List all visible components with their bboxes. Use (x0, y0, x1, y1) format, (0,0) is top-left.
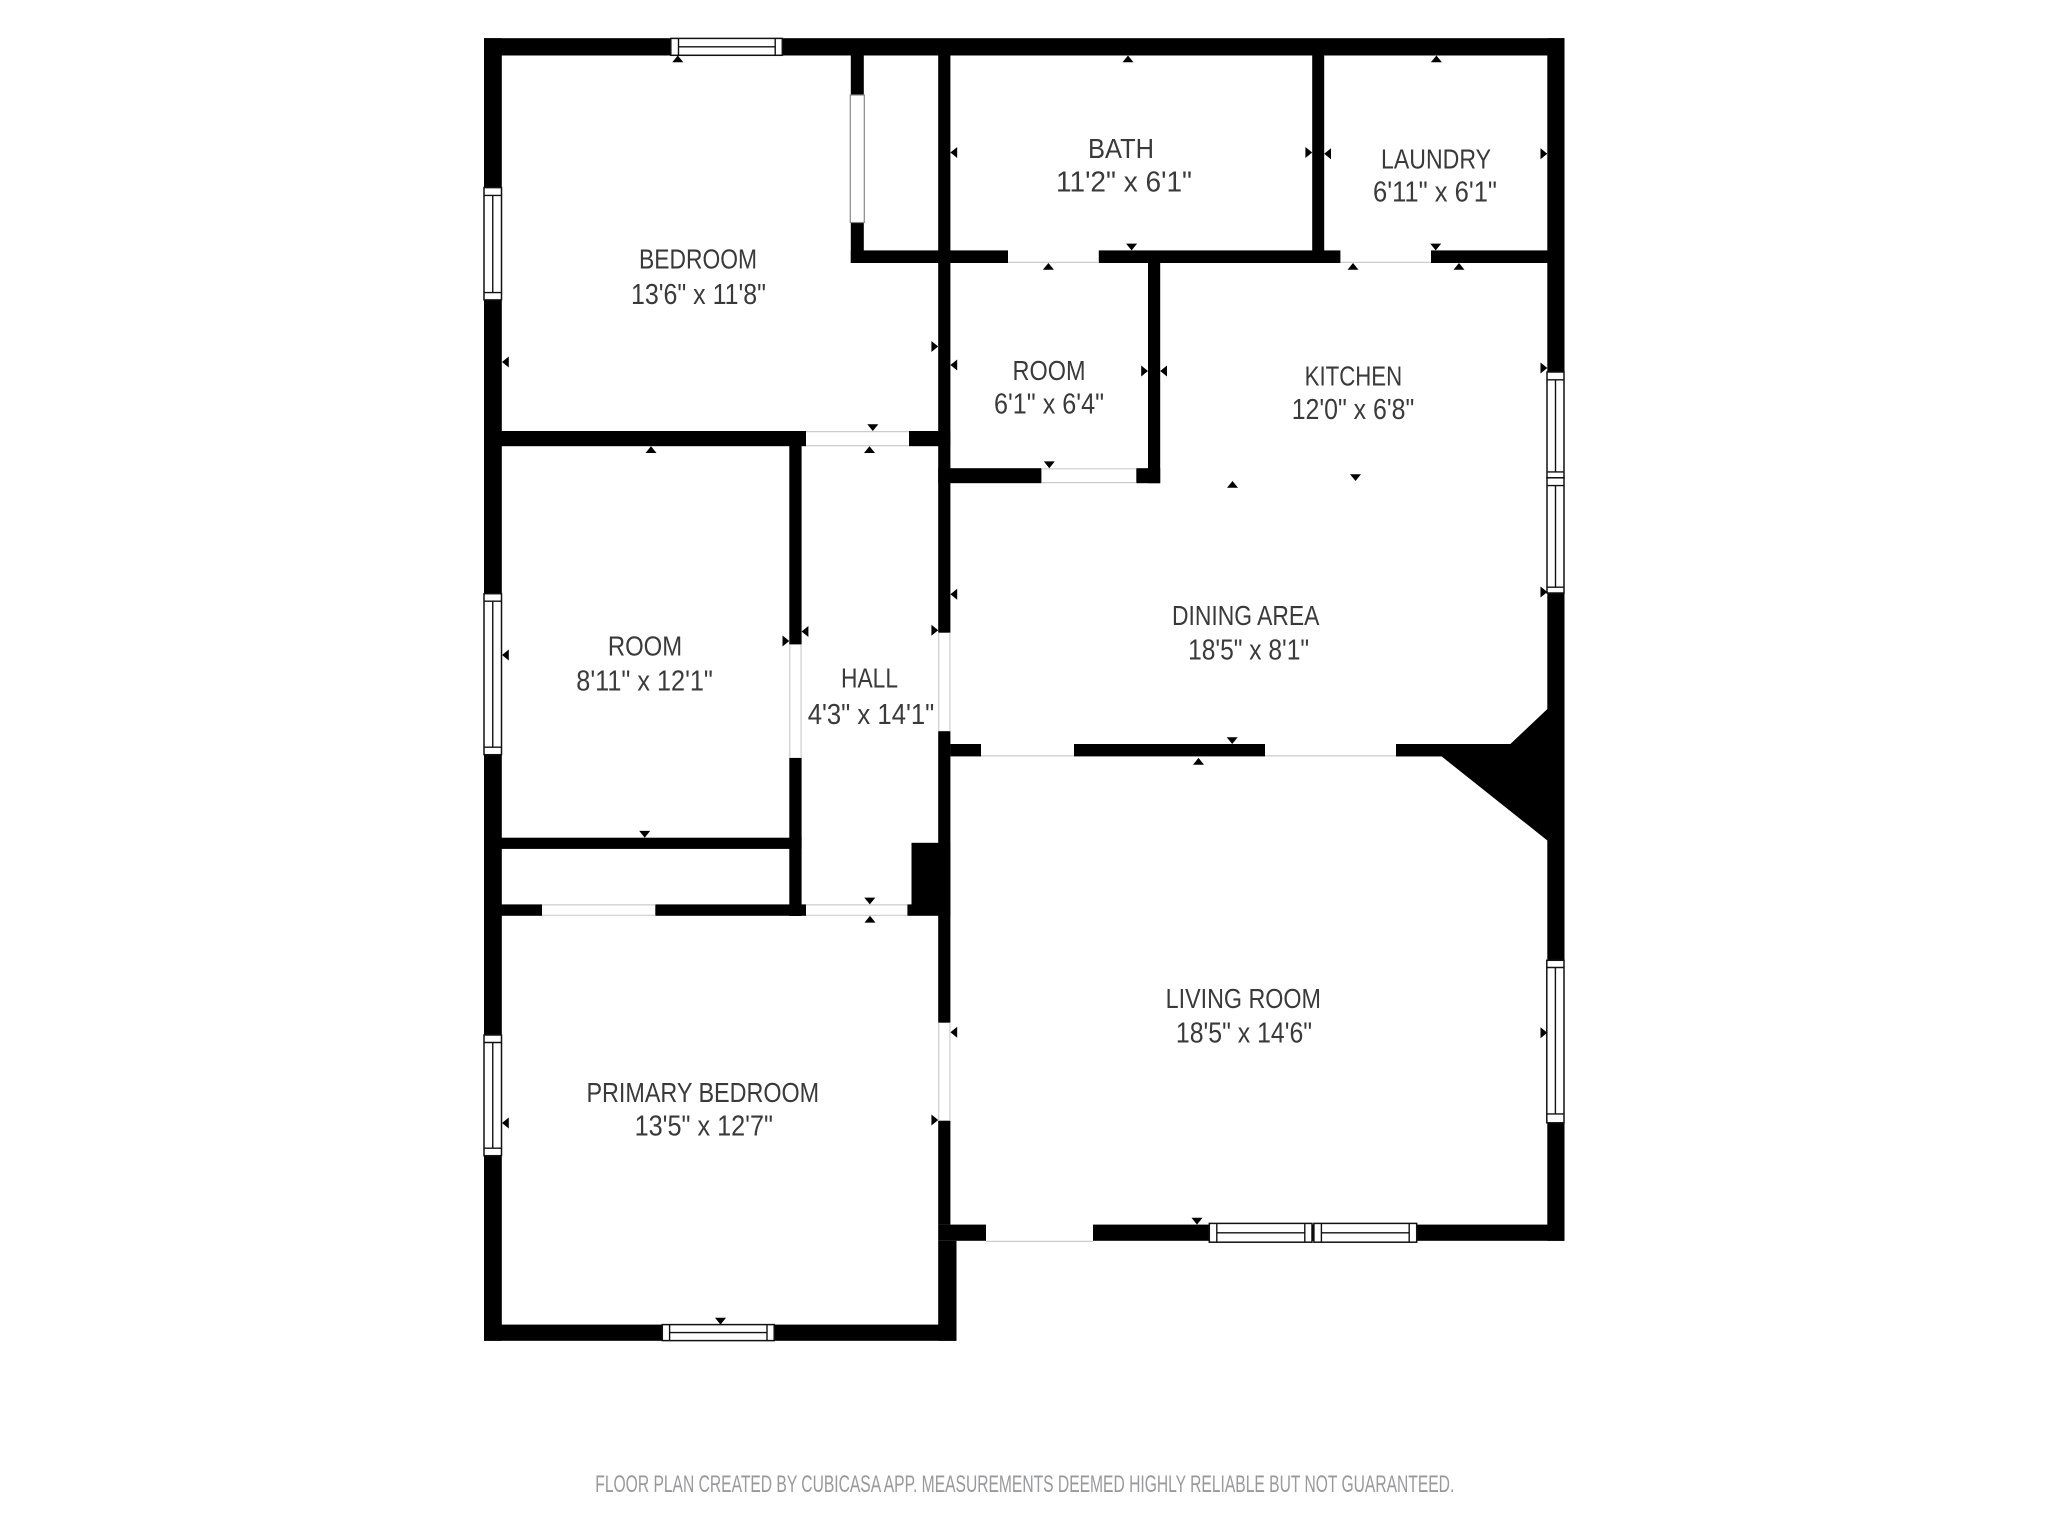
svg-text:4'3" x 14'1": 4'3" x 14'1" (808, 699, 935, 731)
svg-text:FLOOR PLAN CREATED BY CUBICASA: FLOOR PLAN CREATED BY CUBICASA APP. MEAS… (595, 1471, 1454, 1498)
svg-text:BEDROOM: BEDROOM (639, 244, 757, 275)
svg-text:18'5" x 14'6": 18'5" x 14'6" (1176, 1018, 1312, 1050)
svg-text:ROOM: ROOM (608, 631, 682, 662)
svg-text:ROOM: ROOM (1013, 355, 1086, 386)
svg-text:HALL: HALL (841, 663, 898, 694)
svg-text:KITCHEN: KITCHEN (1305, 361, 1403, 392)
svg-text:LIVING ROOM: LIVING ROOM (1166, 983, 1321, 1014)
svg-text:BATH: BATH (1088, 133, 1154, 164)
svg-text:18'5" x 8'1": 18'5" x 8'1" (1188, 634, 1309, 666)
svg-text:6'11" x 6'1": 6'11" x 6'1" (1373, 176, 1497, 208)
svg-text:12'0" x 6'8": 12'0" x 6'8" (1292, 394, 1415, 426)
svg-text:8'11" x 12'1": 8'11" x 12'1" (576, 666, 713, 698)
svg-text:LAUNDRY: LAUNDRY (1381, 143, 1491, 174)
svg-text:DINING AREA: DINING AREA (1172, 600, 1320, 631)
svg-text:PRIMARY BEDROOM: PRIMARY BEDROOM (586, 1077, 819, 1108)
svg-text:11'2" x 6'1": 11'2" x 6'1" (1056, 167, 1192, 199)
svg-text:6'1" x 6'4": 6'1" x 6'4" (994, 388, 1104, 420)
svg-text:13'6" x 11'8": 13'6" x 11'8" (631, 279, 766, 311)
svg-text:13'5" x 12'7": 13'5" x 12'7" (635, 1110, 773, 1142)
